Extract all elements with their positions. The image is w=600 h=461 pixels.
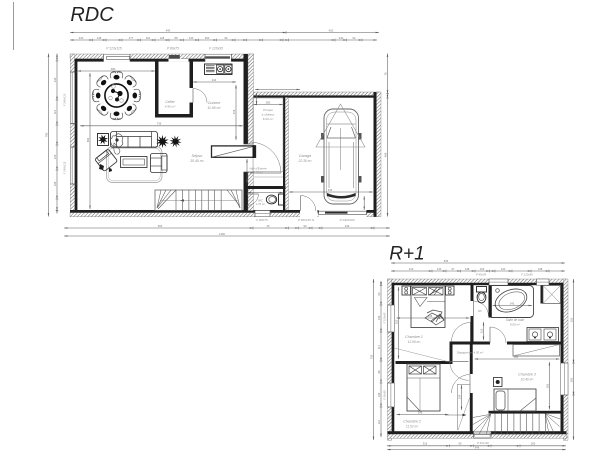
svg-text:R+1: R+1 xyxy=(389,244,424,265)
svg-text:1.70 m²: 1.70 m² xyxy=(256,202,265,206)
svg-text:Cuisine: Cuisine xyxy=(208,101,221,105)
svg-text:106: 106 xyxy=(377,392,381,397)
svg-text:750: 750 xyxy=(369,354,373,359)
svg-text:97: 97 xyxy=(452,267,455,271)
svg-text:240: 240 xyxy=(79,36,84,40)
svg-text:5.20 m²: 5.20 m² xyxy=(253,171,264,175)
svg-text:10.40 m²: 10.40 m² xyxy=(521,377,535,381)
svg-text:110: 110 xyxy=(377,419,381,424)
svg-text:128: 128 xyxy=(160,36,165,40)
svg-text:F 120x95: F 120x95 xyxy=(209,47,223,51)
svg-text:P 90X215 G: P 90X215 G xyxy=(298,218,315,222)
svg-text:117: 117 xyxy=(377,344,381,349)
svg-text:940: 940 xyxy=(166,28,171,32)
svg-text:1460: 1460 xyxy=(219,232,225,236)
svg-text:790: 790 xyxy=(44,132,48,137)
svg-text:486: 486 xyxy=(383,152,387,157)
svg-text:F 140x115: F 140x115 xyxy=(63,93,67,106)
svg-text:946: 946 xyxy=(475,446,480,450)
svg-text:F 80X75: F 80X75 xyxy=(256,218,268,222)
svg-text:582: 582 xyxy=(86,137,90,142)
svg-text:140: 140 xyxy=(437,267,442,271)
svg-text:96: 96 xyxy=(225,36,228,40)
svg-text:845: 845 xyxy=(444,259,449,263)
svg-text:253: 253 xyxy=(569,317,573,322)
svg-text:76: 76 xyxy=(383,72,387,75)
svg-text:96: 96 xyxy=(377,370,381,373)
svg-text:F 123x95: F 123x95 xyxy=(521,273,533,277)
svg-text:318: 318 xyxy=(232,109,236,114)
svg-text:452: 452 xyxy=(329,28,334,32)
svg-text:104: 104 xyxy=(457,394,461,399)
svg-text:116: 116 xyxy=(146,36,151,40)
svg-text:419: 419 xyxy=(409,267,414,271)
svg-text:Chambre 1: Chambre 1 xyxy=(405,335,423,339)
svg-text:904: 904 xyxy=(158,224,163,228)
svg-text:316: 316 xyxy=(423,442,428,446)
svg-text:280: 280 xyxy=(266,100,271,104)
svg-text:292: 292 xyxy=(569,377,573,382)
svg-text:P 240X200: P 240X200 xyxy=(340,218,355,222)
svg-text:Cellier: Cellier xyxy=(165,100,175,104)
svg-text:148: 148 xyxy=(538,267,543,271)
svg-text:F 120x95: F 120x95 xyxy=(383,312,387,323)
svg-text:Séjour: Séjour xyxy=(192,154,204,158)
svg-text:22.30 m²: 22.30 m² xyxy=(297,159,312,163)
svg-text:Garage: Garage xyxy=(299,154,311,158)
svg-text:11.90 m²: 11.90 m² xyxy=(207,106,221,110)
svg-text:à chaleur: à chaleur xyxy=(262,113,276,117)
svg-text:45: 45 xyxy=(267,224,270,228)
svg-text:WC: WC xyxy=(478,310,482,313)
svg-text:148: 148 xyxy=(465,267,470,271)
svg-text:103: 103 xyxy=(480,267,485,271)
svg-text:Chambre 3: Chambre 3 xyxy=(518,373,536,377)
svg-text:140: 140 xyxy=(189,36,194,40)
svg-text:Dégagement 4.50 m²: Dégagement 4.50 m² xyxy=(457,350,484,354)
svg-text:283: 283 xyxy=(545,383,549,388)
svg-text:12.06 m²: 12.06 m² xyxy=(408,340,422,344)
svg-text:Salle de bain: Salle de bain xyxy=(506,318,525,322)
svg-text:Pompe: Pompe xyxy=(263,108,273,112)
svg-text:94: 94 xyxy=(353,36,356,40)
svg-text:P 123x115: P 123x115 xyxy=(106,47,122,51)
svg-text:240: 240 xyxy=(339,36,344,40)
svg-text:265: 265 xyxy=(531,442,536,446)
svg-text:230: 230 xyxy=(53,77,57,82)
svg-text:93: 93 xyxy=(377,292,381,295)
svg-text:125: 125 xyxy=(53,154,57,159)
svg-text:530: 530 xyxy=(328,188,333,192)
svg-text:RDC: RDC xyxy=(70,4,114,26)
svg-text:215: 215 xyxy=(479,328,483,333)
svg-text:138: 138 xyxy=(97,36,102,40)
svg-text:8.00 m²: 8.00 m² xyxy=(510,323,521,327)
svg-text:P 45x132: P 45x132 xyxy=(477,441,489,445)
svg-text:736: 736 xyxy=(157,122,162,126)
svg-text:Chambre 2: Chambre 2 xyxy=(403,420,421,424)
svg-text:115: 115 xyxy=(53,109,57,114)
svg-text:P 80x75: P 80x75 xyxy=(167,47,179,51)
svg-text:F 140x115: F 140x115 xyxy=(63,161,67,174)
svg-text:243: 243 xyxy=(510,301,515,305)
svg-text:F 90x95: F 90x95 xyxy=(383,390,387,400)
svg-text:90: 90 xyxy=(459,442,462,446)
svg-text:246: 246 xyxy=(345,224,350,228)
svg-text:290: 290 xyxy=(205,36,210,40)
svg-text:302: 302 xyxy=(394,319,398,324)
svg-text:11.52 m²: 11.52 m² xyxy=(406,424,419,428)
svg-text:244: 244 xyxy=(212,78,217,82)
svg-text:88: 88 xyxy=(175,36,178,40)
svg-text:P 45x95: P 45x95 xyxy=(476,273,487,277)
svg-text:140: 140 xyxy=(377,315,381,320)
svg-text:6.00 m²: 6.00 m² xyxy=(263,117,274,121)
svg-text:90: 90 xyxy=(304,224,307,228)
svg-text:140: 140 xyxy=(501,267,506,271)
svg-text:380: 380 xyxy=(111,67,116,71)
svg-text:4.90 m²: 4.90 m² xyxy=(165,105,176,109)
svg-text:106: 106 xyxy=(53,181,57,186)
svg-text:177: 177 xyxy=(129,36,134,40)
svg-text:35.40 m²: 35.40 m² xyxy=(190,159,204,163)
